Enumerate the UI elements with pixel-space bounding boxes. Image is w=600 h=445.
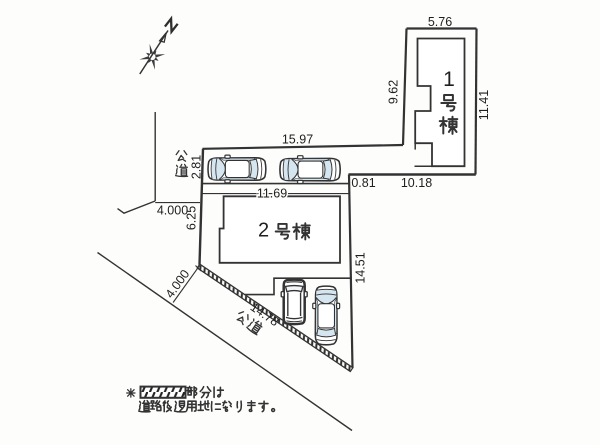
svg-text:11.69: 11.69 <box>257 187 287 201</box>
svg-text:9.62: 9.62 <box>387 80 401 104</box>
svg-text:0.81: 0.81 <box>351 176 375 190</box>
svg-text:10.18: 10.18 <box>401 176 432 190</box>
svg-text:11.41: 11.41 <box>477 90 491 120</box>
svg-text:14.51: 14.51 <box>354 252 368 283</box>
svg-text:4.000: 4.000 <box>157 204 188 218</box>
svg-text:15.97: 15.97 <box>282 133 313 147</box>
svg-text:2.81: 2.81 <box>190 155 204 179</box>
svg-text:5.76: 5.76 <box>428 15 452 29</box>
svg-text:1: 1 <box>443 68 455 91</box>
svg-text:2: 2 <box>258 220 269 242</box>
